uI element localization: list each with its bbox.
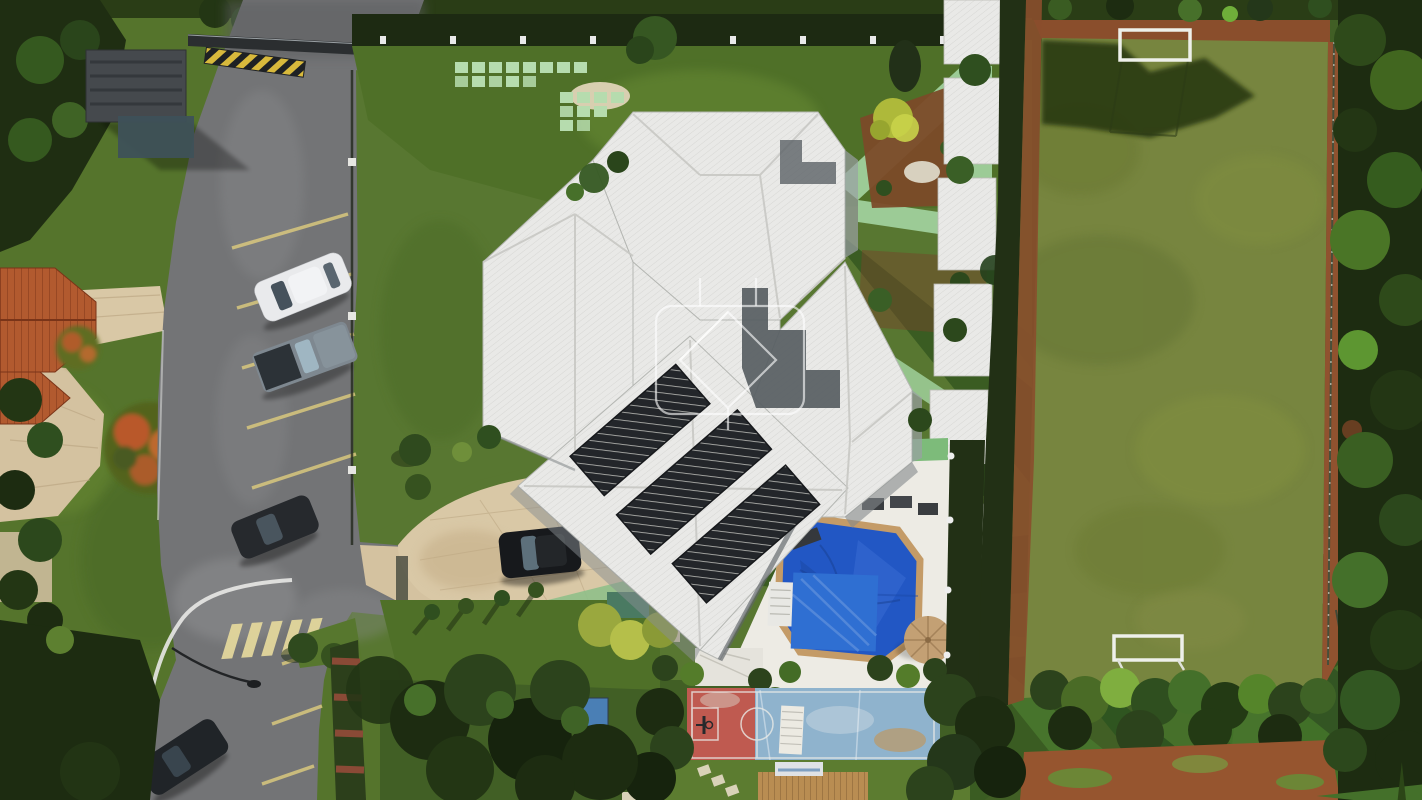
- sports-court: [687, 688, 940, 762]
- poolside-hedge: [945, 440, 985, 705]
- booth-annex: [118, 116, 194, 158]
- round-bush: [405, 474, 431, 500]
- aerial-photo-stage: [0, 0, 1422, 800]
- white-slat-panel: [779, 705, 804, 754]
- sand-worn-patch: [874, 728, 926, 752]
- sports-field: [1005, 0, 1422, 800]
- aerial-photo: [0, 0, 1422, 800]
- agave-bush: [452, 442, 472, 462]
- round-bush: [399, 434, 431, 466]
- wood-deck: [758, 772, 868, 800]
